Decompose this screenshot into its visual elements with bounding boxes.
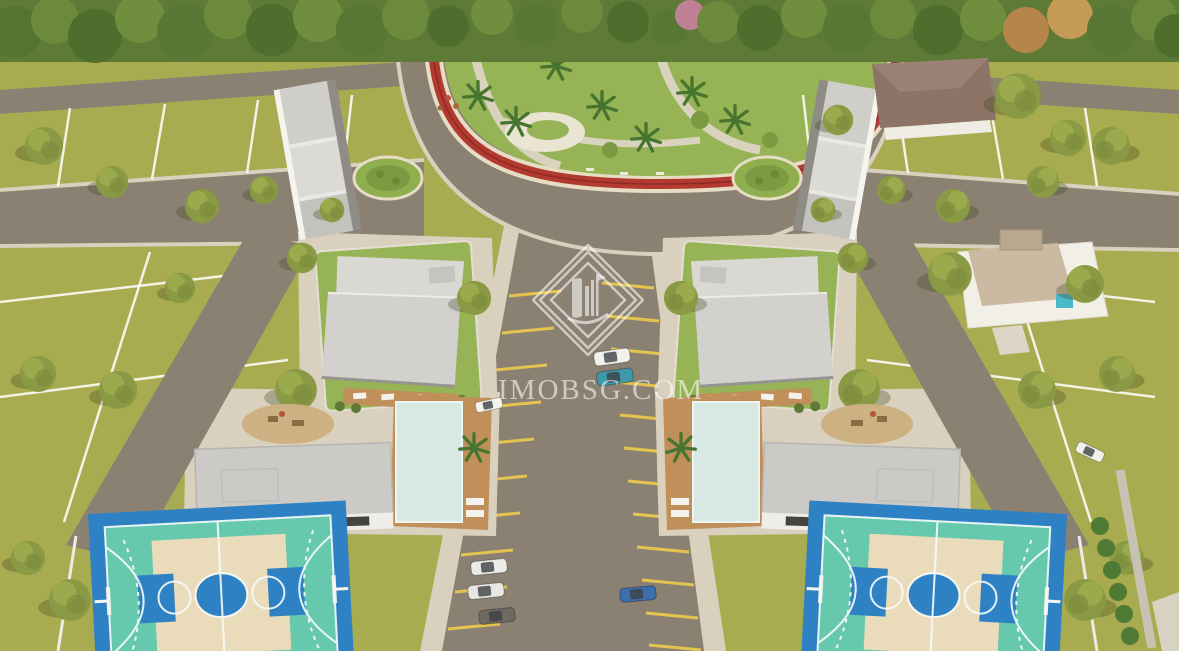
autumn-tree: [1003, 7, 1049, 53]
aerial-render: IMOBSG.COM: [0, 0, 1179, 651]
blue-car: [619, 585, 656, 602]
scene-canvas: [0, 0, 1179, 651]
forest-tree-line: [0, 0, 1179, 63]
